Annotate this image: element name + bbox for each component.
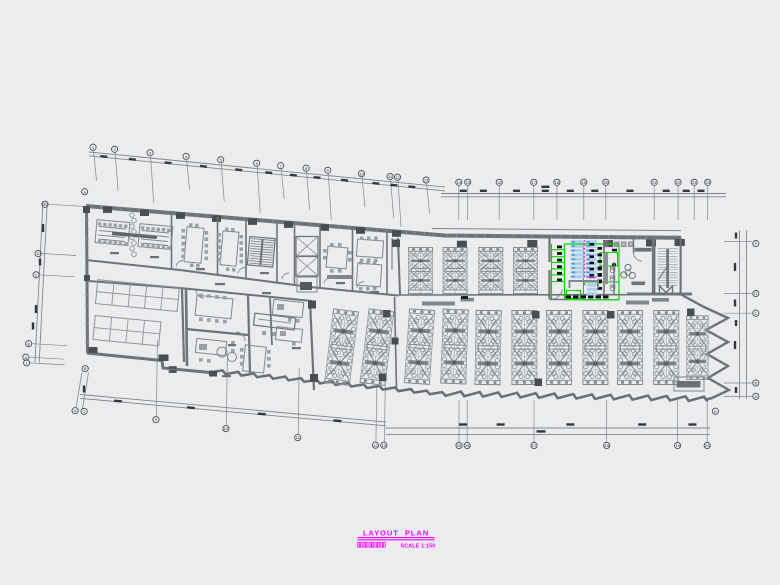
svg-text:C: C	[35, 272, 38, 277]
svg-text:18: 18	[555, 180, 560, 185]
svg-text:17: 17	[532, 180, 537, 185]
svg-text:D: D	[37, 251, 40, 256]
svg-text:16: 16	[497, 180, 502, 185]
svg-text:A: A	[754, 394, 757, 399]
svg-text:17: 17	[532, 443, 537, 448]
svg-text:10: 10	[359, 171, 364, 176]
svg-text:13: 13	[424, 178, 429, 183]
svg-text:A: A	[24, 355, 27, 360]
svg-text:21: 21	[652, 180, 657, 185]
svg-text:16: 16	[465, 443, 470, 448]
svg-text:SCALE 1:150: SCALE 1:150	[401, 543, 436, 549]
svg-text:22: 22	[676, 180, 681, 185]
svg-text:19: 19	[675, 443, 680, 448]
svg-text:C: C	[754, 311, 757, 316]
svg-text:LAYOUT PLAN: LAYOUT PLAN	[363, 529, 429, 538]
svg-text:15: 15	[457, 443, 462, 448]
svg-text:A: A	[74, 408, 77, 413]
svg-text:B: B	[27, 341, 30, 346]
svg-text:20: 20	[705, 443, 710, 448]
svg-text:D: D	[754, 291, 757, 296]
svg-text:B: B	[754, 381, 757, 386]
svg-text:24: 24	[705, 180, 710, 185]
svg-text:23: 23	[692, 180, 697, 185]
svg-text:12: 12	[373, 443, 378, 448]
svg-text:14: 14	[457, 180, 462, 185]
svg-text:15: 15	[465, 180, 470, 185]
svg-text:10: 10	[224, 426, 229, 431]
svg-text:18: 18	[604, 443, 609, 448]
svg-text:13: 13	[382, 443, 387, 448]
svg-text:E: E	[44, 202, 47, 207]
svg-text:B: B	[84, 366, 87, 371]
svg-text:20: 20	[604, 180, 609, 185]
svg-text:A: A	[83, 189, 86, 194]
svg-text:12: 12	[395, 175, 400, 180]
svg-text:19: 19	[582, 180, 587, 185]
